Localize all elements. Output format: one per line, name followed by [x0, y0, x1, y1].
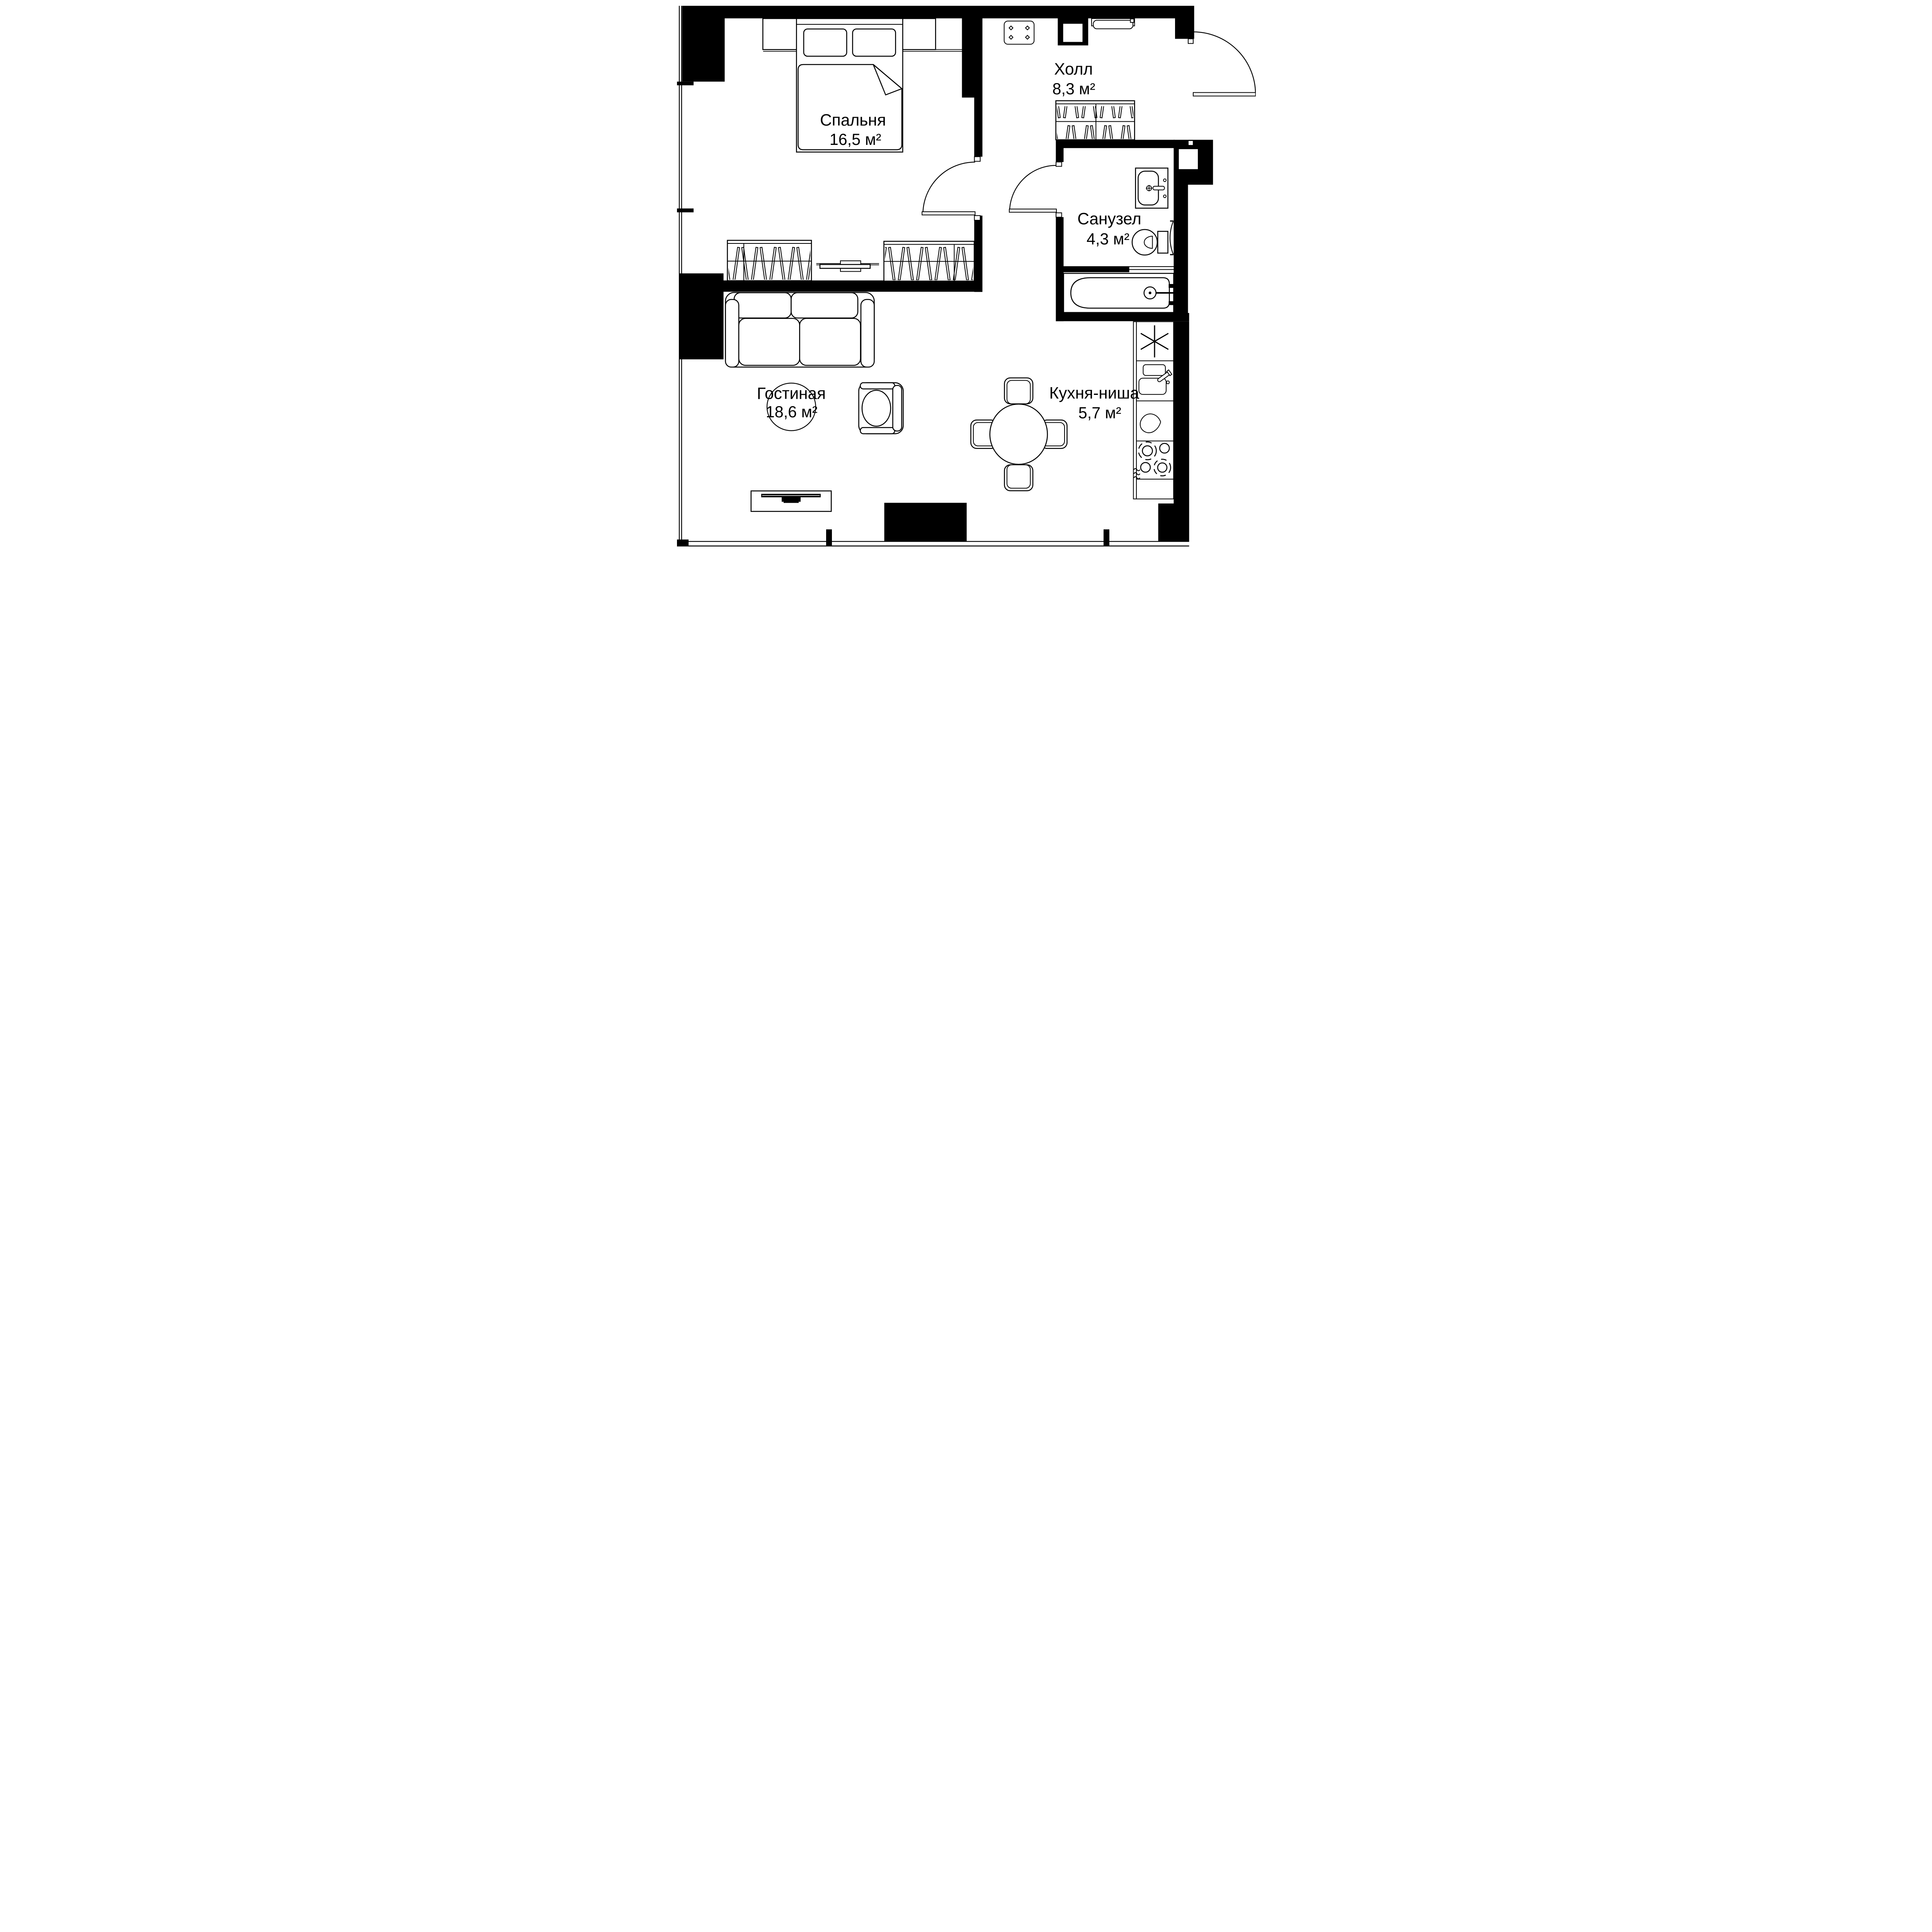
bathroom-door-top-jamb — [1056, 162, 1062, 166]
wall-bottom-left-corner — [677, 539, 689, 546]
floor-plan-page: Спальня 16,5 м² Холл 8,3 м² Санузел 4,3 … — [676, 0, 1256, 547]
bedroom-door-bottom-jamb — [975, 216, 980, 220]
wall-bottom-stub-1 — [826, 529, 832, 546]
bathtub-drain-center — [1149, 292, 1151, 294]
sink-fitting-1 — [1163, 179, 1166, 182]
towel-rail-arc — [1170, 221, 1173, 255]
hall-label: Холл — [1054, 60, 1093, 78]
wall-kitchen-right — [1174, 321, 1189, 503]
wall-bottom-right-block — [1158, 503, 1189, 541]
bathtub-fitting-1 — [1169, 284, 1174, 288]
bedroom-door-leaf — [922, 212, 975, 215]
wall-top — [682, 6, 1194, 19]
entry-shelf-knob — [1131, 19, 1134, 22]
tv-stand-base-bar — [784, 502, 799, 503]
bedroom-door-top-jamb — [975, 157, 980, 162]
entry-shelf-body — [1094, 20, 1133, 29]
sofa-back-cushion-left — [734, 293, 791, 318]
armchair-back — [893, 386, 902, 431]
sofa-seat-right — [800, 318, 861, 366]
towel-rail-icon — [1170, 221, 1173, 255]
chair-bottom-inner — [1007, 465, 1031, 488]
bedroom-door — [922, 157, 980, 221]
entry-shelf — [1092, 19, 1134, 29]
entry-door-top-jamb — [1188, 39, 1193, 44]
wall-left-block — [680, 274, 724, 360]
wall-bathroom-bottom — [1056, 313, 1189, 321]
bathroom-door-leaf — [1009, 209, 1056, 212]
bedroom-area: 16,5 м² — [830, 131, 881, 148]
hatch-box — [1004, 21, 1034, 44]
bathroom-sink — [1136, 168, 1168, 208]
bedroom-label: Спальня — [820, 111, 886, 129]
pillow-left — [804, 29, 847, 56]
kitchen-area: 5,7 м² — [1078, 404, 1121, 422]
wardrobe-hall — [1056, 101, 1135, 140]
dining-table — [990, 404, 1048, 464]
bathroom-door — [1009, 162, 1062, 217]
electric-hatch — [1004, 21, 1034, 44]
towel-rail-end-1 — [1170, 221, 1173, 222]
wall-left-stub-2 — [677, 209, 694, 213]
pillow-right — [853, 29, 896, 56]
wall-interior-horizontal — [723, 281, 983, 292]
bathroom-door-bottom-jamb — [1056, 213, 1062, 217]
living-label: Гостиная — [757, 385, 826, 403]
wardrobe-left-hangers — [729, 246, 811, 280]
floor-plan-canvas: Спальня 16,5 м² Холл 8,3 м² Санузел 4,3 … — [676, 0, 1256, 547]
entry-door-leaf — [1193, 93, 1256, 96]
bathroom-area: 4,3 м² — [1087, 230, 1129, 248]
armchair-arm-top — [861, 383, 895, 389]
tv-wall-mount — [816, 261, 879, 272]
sink-lever — [1153, 186, 1165, 190]
tv-stand-mount — [782, 497, 801, 502]
wall-bedroom-divider-mid — [974, 98, 982, 157]
wall-left-stub-1 — [677, 82, 694, 85]
sofa-back-cushion-right — [791, 293, 858, 318]
right-shaft-box — [1179, 149, 1198, 170]
wall-tv-icon — [820, 265, 870, 269]
sink-fitting-2 — [1163, 195, 1166, 198]
kitchen-label: Кухня-ниша — [1049, 384, 1139, 402]
entry-door — [1188, 32, 1256, 146]
sink-drainer — [1143, 365, 1166, 376]
toilet-tank — [1158, 231, 1168, 253]
tv-stand — [751, 491, 832, 512]
bedroom-door-swing-arc — [923, 162, 975, 214]
wall-bottom-block — [884, 503, 967, 541]
sofa — [726, 293, 874, 367]
wardrobe-right-hangers — [885, 247, 973, 280]
toilet — [1132, 230, 1168, 255]
wall-bathroom-right — [1174, 185, 1188, 313]
wall-bottom-stub-2 — [1104, 529, 1109, 546]
living-area-text: 18,6 м² — [766, 403, 818, 421]
wall-entry-column — [1175, 19, 1194, 39]
bathroom-label: Санузел — [1077, 210, 1141, 228]
wall-bedroom-divider-lower — [974, 216, 982, 292]
hall-area: 8,3 м² — [1053, 80, 1095, 98]
chair-top-inner — [1007, 381, 1031, 404]
armchair-arm-bottom — [861, 428, 895, 434]
sofa-armrest-left — [726, 299, 739, 367]
nightstand-right — [903, 19, 935, 49]
wall-top-left-block — [682, 6, 725, 82]
entry-door-swing-arc — [1193, 32, 1255, 94]
kitchen-units — [1133, 322, 1173, 499]
wall-bathroom-lower — [1056, 217, 1064, 321]
hall-shaft-box — [1063, 24, 1083, 43]
bathroom-door-swing-arc — [1010, 165, 1056, 212]
entry-door-bottom-jamb — [1188, 141, 1193, 146]
wardrobe-left — [728, 240, 812, 281]
nightstand-left — [763, 19, 796, 49]
bath-screen-wall — [1064, 266, 1129, 272]
armchair-seat — [862, 390, 891, 426]
wardrobe-hall-hangers — [1057, 106, 1134, 139]
sofa-seat-left — [739, 318, 800, 366]
wall-bedroom-divider-upper — [962, 19, 983, 98]
bathtub-fitting-2 — [1169, 301, 1174, 305]
wall-hall-bottom — [1056, 140, 1175, 148]
sink-screw-2 — [1167, 381, 1170, 384]
chair-top — [1005, 378, 1033, 404]
sofa-armrest-right — [861, 299, 874, 367]
bathtub — [1064, 274, 1174, 313]
wardrobe-right — [884, 241, 975, 281]
chair-bottom — [1005, 465, 1033, 491]
armchair — [859, 383, 903, 434]
towel-rail-end-2 — [1170, 254, 1173, 255]
